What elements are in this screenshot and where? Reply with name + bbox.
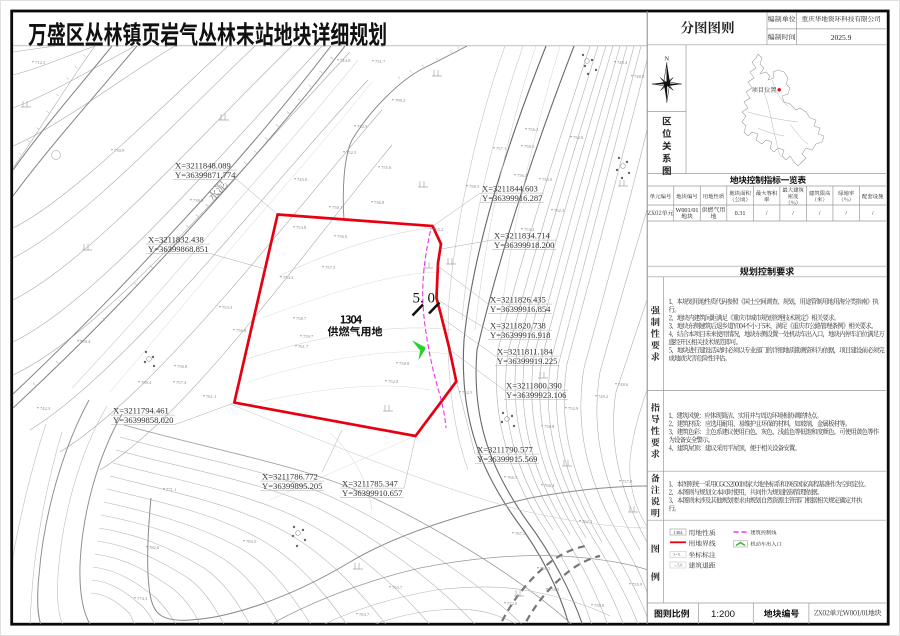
svg-text:758.7: 758.7 <box>296 316 307 321</box>
svg-text:752.9: 752.9 <box>568 406 579 411</box>
svg-text:/: / <box>872 210 874 217</box>
svg-text:756.2: 756.2 <box>528 127 539 132</box>
svg-text:756.8: 756.8 <box>374 200 385 205</box>
svg-text:783.7: 783.7 <box>359 612 370 617</box>
svg-text:782.0: 782.0 <box>149 545 160 550</box>
svg-text:752.8: 752.8 <box>388 379 399 384</box>
svg-text:753.8: 753.8 <box>296 225 307 230</box>
svg-text:755.0: 755.0 <box>542 177 553 182</box>
svg-text:Y=36399916.287: Y=36399916.287 <box>482 193 543 203</box>
svg-text:W001/01: W001/01 <box>675 207 698 214</box>
svg-text:752.3: 752.3 <box>554 208 565 213</box>
svg-text:5. 0: 5. 0 <box>413 291 436 307</box>
svg-text:751.7: 751.7 <box>375 59 386 64</box>
svg-text:Y=36399868.851: Y=36399868.851 <box>148 244 208 254</box>
svg-text:Y=36399916.854: Y=36399916.854 <box>490 304 551 314</box>
svg-text:761.1: 761.1 <box>206 394 217 399</box>
svg-text:Y=36399915.569: Y=36399915.569 <box>477 454 537 464</box>
svg-text:756.8: 756.8 <box>177 364 188 369</box>
svg-text:774.3: 774.3 <box>137 596 148 601</box>
svg-text:745.0: 745.0 <box>297 177 308 182</box>
svg-text:755.9: 755.9 <box>632 582 643 587</box>
svg-text:753.3: 753.3 <box>222 305 233 310</box>
svg-text:758.8: 758.8 <box>399 361 410 366</box>
svg-text:749.4: 749.4 <box>617 60 628 65</box>
svg-text:742.3: 742.3 <box>40 406 51 411</box>
svg-text:752.5: 752.5 <box>346 150 357 155</box>
svg-text:748.8: 748.8 <box>634 74 645 79</box>
svg-text:757.4: 757.4 <box>176 380 187 385</box>
svg-text:756.0: 756.0 <box>337 234 348 239</box>
svg-text:762.1: 762.1 <box>582 519 593 524</box>
svg-text:771.1: 771.1 <box>166 487 177 492</box>
svg-text:0.31: 0.31 <box>735 210 746 217</box>
svg-text:756.8: 756.8 <box>236 328 247 333</box>
svg-text:753.2: 753.2 <box>524 227 535 232</box>
svg-text:748.6: 748.6 <box>618 382 629 387</box>
svg-text:1304: 1304 <box>673 530 683 535</box>
svg-text:744.0: 744.0 <box>340 58 351 63</box>
svg-text:↔5.0: ↔5.0 <box>674 564 683 568</box>
svg-text:755.6: 755.6 <box>381 165 392 170</box>
svg-text:730.9: 730.9 <box>114 148 125 153</box>
svg-text:758.3: 758.3 <box>540 566 551 571</box>
svg-text:759.4: 759.4 <box>80 339 91 344</box>
svg-text:Y=36399895.205: Y=36399895.205 <box>262 481 322 491</box>
svg-text:758.5: 758.5 <box>524 144 535 149</box>
svg-text:761.7: 761.7 <box>298 344 309 349</box>
svg-text:753.7: 753.7 <box>392 585 403 590</box>
svg-text:Y=36399916.918: Y=36399916.918 <box>490 330 550 340</box>
svg-text:2025.9: 2025.9 <box>831 33 852 42</box>
svg-text:750.4: 750.4 <box>141 380 152 385</box>
svg-text:Y=36399918.200: Y=36399918.200 <box>494 240 554 250</box>
svg-text:757.3: 757.3 <box>325 265 336 270</box>
svg-text:Y=36399858.020: Y=36399858.020 <box>113 415 173 425</box>
svg-text:/: / <box>792 210 794 217</box>
svg-text:783.5: 783.5 <box>246 539 257 544</box>
svg-text:750.1: 750.1 <box>332 205 343 210</box>
svg-text:799.2: 799.2 <box>395 98 406 103</box>
svg-text:754.2: 754.2 <box>283 275 294 280</box>
svg-text:758.8: 758.8 <box>544 424 555 429</box>
svg-text:757.1: 757.1 <box>496 146 507 151</box>
svg-text:755.2: 755.2 <box>433 227 444 232</box>
svg-text:Y=36399871.774: Y=36399871.774 <box>175 170 236 180</box>
svg-text:Y=36399919.225: Y=36399919.225 <box>497 356 557 366</box>
svg-text:757.8: 757.8 <box>622 479 633 484</box>
svg-text:752.8: 752.8 <box>573 135 584 140</box>
svg-text:756.4: 756.4 <box>517 173 528 178</box>
svg-text:758.8: 758.8 <box>594 603 605 608</box>
svg-text:Y=36399923.106: Y=36399923.106 <box>506 390 567 400</box>
svg-text:Y=36399910.657: Y=36399910.657 <box>342 488 403 498</box>
svg-text:758.3: 758.3 <box>469 184 480 189</box>
svg-text:759.5: 759.5 <box>549 587 560 592</box>
svg-text:752.3: 752.3 <box>357 124 368 129</box>
svg-text:X=N...: X=N... <box>673 553 683 557</box>
svg-text:1:200: 1:200 <box>711 609 735 620</box>
svg-text:749.2: 749.2 <box>598 394 609 399</box>
svg-text:766.4: 766.4 <box>544 483 555 488</box>
svg-text:712.3: 712.3 <box>35 60 46 65</box>
svg-text:/: / <box>819 210 821 217</box>
svg-text:/: / <box>845 210 847 217</box>
svg-text:739.3: 739.3 <box>193 198 204 203</box>
svg-text:N: N <box>664 56 669 63</box>
svg-text:767.2: 767.2 <box>515 531 526 536</box>
svg-text:766.5: 766.5 <box>507 475 518 480</box>
svg-text:752.5: 752.5 <box>462 390 473 395</box>
svg-text:759.7: 759.7 <box>303 334 314 339</box>
svg-text:/: / <box>766 210 768 217</box>
svg-text:772.0: 772.0 <box>507 601 518 606</box>
